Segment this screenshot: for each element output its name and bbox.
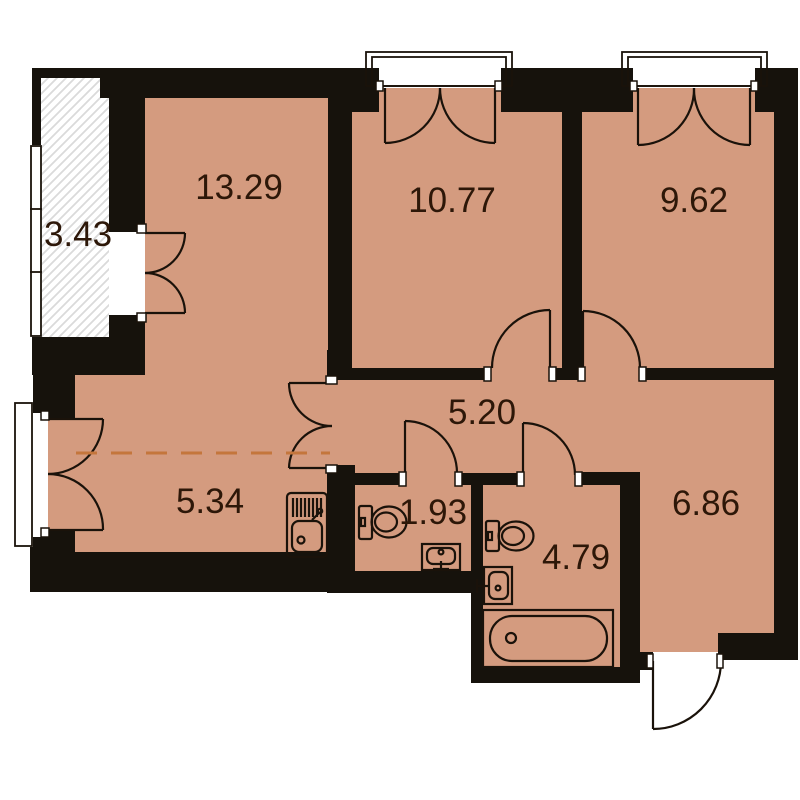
balcony-hatch (41, 78, 100, 98)
entrance-opening (653, 652, 718, 678)
left-window-frame-strip (14, 402, 33, 547)
balcony-door-opening (109, 232, 145, 315)
floor-plan-page: 3.43 13.29 10.77 9.62 5.20 5.34 1.93 4.7… (0, 0, 800, 800)
floor-bedroom-right (582, 88, 774, 380)
room-label-wc: 1.93 (399, 493, 467, 532)
floor-plan: 3.43 13.29 10.77 9.62 5.20 5.34 1.93 4.7… (0, 0, 800, 800)
room-label-living-room: 13.29 (195, 168, 283, 207)
room-label-corridor: 5.20 (448, 393, 516, 432)
room-label-bathroom: 4.79 (542, 538, 610, 577)
room-label-bedroom-right: 9.62 (660, 181, 728, 220)
room-label-balcony: 3.43 (44, 215, 112, 254)
room-label-kitchen-zone: 5.34 (176, 482, 244, 521)
left-window-opening (33, 413, 48, 537)
floor-bedroom-left (352, 88, 562, 380)
room-label-entry-hall: 6.86 (672, 484, 740, 523)
room-label-bedroom-left: 10.77 (408, 181, 496, 220)
